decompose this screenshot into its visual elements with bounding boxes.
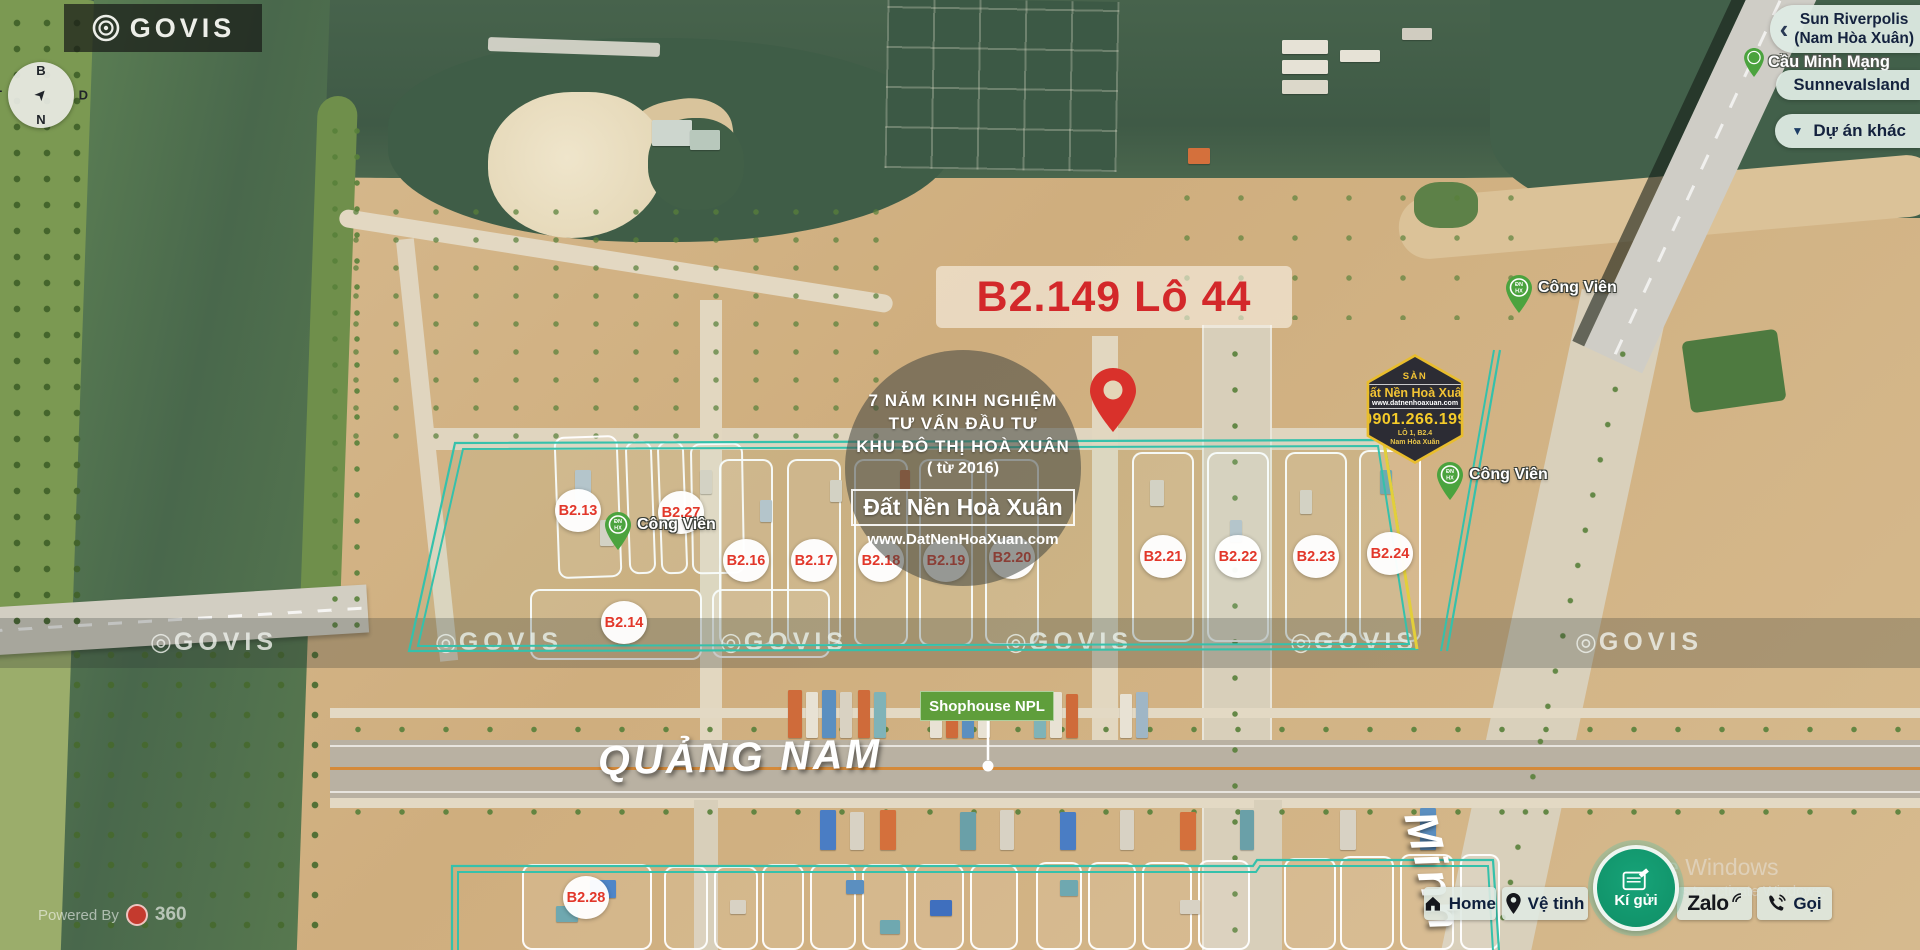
phone-icon: [1767, 894, 1786, 913]
call-button[interactable]: Gọi: [1757, 887, 1832, 920]
plot-label-B2.14[interactable]: B2.14: [601, 601, 647, 644]
rooftop: [1060, 880, 1078, 896]
rooftop: [1120, 694, 1132, 738]
powered-by-attribution: Powered By 360: [38, 904, 187, 926]
hex-address: Nam Hòa Xuân: [1390, 438, 1439, 447]
plot-label-B2.23[interactable]: B2.23: [1293, 535, 1339, 578]
rooftop: [1188, 148, 1210, 164]
green-pin-icon: ĐN HX: [605, 512, 631, 550]
plot-label-B2.21[interactable]: B2.21: [1140, 535, 1186, 578]
promo-watermark-circle: 7 NĂM KINH NGHIỆM TƯ VẤN ĐẦU TƯ KHU ĐÔ T…: [845, 350, 1081, 586]
svg-text:HX: HX: [1515, 289, 1523, 295]
lot-outline: [1198, 860, 1250, 950]
rooftop: [730, 900, 746, 914]
rooftop: [830, 480, 842, 502]
zalo-logo: Zalo: [1687, 892, 1728, 916]
compass-west-label: T: [0, 88, 2, 103]
park-label: Công Viên: [1538, 279, 1617, 297]
home-icon: [1424, 894, 1442, 913]
compass-south-label: N: [36, 112, 45, 127]
park-marker: ĐN HX Công Viên: [1437, 462, 1548, 500]
powered-by-text: Powered By: [38, 907, 119, 924]
park-label: Công Viên: [637, 516, 716, 534]
project-name-line1: Sun Riverpolis: [1800, 10, 1909, 29]
lot-outline: [970, 864, 1018, 950]
plot-label-B2.13[interactable]: B2.13: [555, 489, 601, 532]
govis-spiral-icon: [91, 13, 121, 43]
shophouse-npl-label[interactable]: Shophouse NPL: [920, 691, 1054, 721]
project-name-line2: (Nam Hòa Xuân): [1794, 29, 1914, 48]
rooftop: [1282, 60, 1328, 74]
rooftop: [1240, 810, 1254, 850]
rooftop: [1150, 480, 1164, 506]
selected-plot-pin-icon[interactable]: [1089, 368, 1137, 437]
hex-top-label: SÀN: [1403, 371, 1428, 382]
powered-by-logo-icon: [126, 904, 148, 926]
consign-button[interactable]: Kí gửi: [1593, 845, 1679, 931]
rooftop: [1402, 28, 1432, 40]
green-pin-icon: [1744, 48, 1764, 77]
compass-east-label: D: [79, 88, 88, 103]
rooftop: [1180, 812, 1196, 850]
rooftop: [960, 812, 976, 850]
map-watermark: ◎GOVIS: [1575, 627, 1703, 657]
green-pin-icon: ĐN HX: [1506, 275, 1532, 313]
promo-line: KHU ĐÔ THỊ HOÀ XUÂN: [856, 435, 1070, 458]
hex-phone-number: 0901.266.199: [1363, 411, 1467, 429]
rooftop: [1380, 470, 1392, 494]
map-watermark: ◎GOVIS: [435, 627, 563, 657]
svg-text:ĐN: ĐN: [614, 519, 622, 525]
lot-outline: [762, 864, 804, 950]
svg-text:HX: HX: [1446, 476, 1454, 482]
compass-north-label: B: [36, 63, 45, 78]
rooftop: [1066, 694, 1078, 738]
nav-back-project[interactable]: ‹ Sun Riverpolis (Nam Hòa Xuân): [1770, 5, 1920, 53]
project-name: SunnevaIsland: [1794, 76, 1910, 95]
map-pin-icon: [1506, 893, 1521, 914]
selected-plot-title: B2.149 Lô 44: [936, 266, 1292, 328]
rooftop: [846, 880, 864, 894]
other-projects-label: Dự án khác: [1813, 121, 1906, 141]
rooftop: [788, 690, 802, 738]
map-aquaculture-ponds: [885, 0, 1120, 172]
rooftop: [880, 920, 900, 934]
lot-outline: [810, 864, 856, 950]
plot-label-B2.24[interactable]: B2.24: [1367, 532, 1413, 575]
rooftop: [1282, 40, 1328, 54]
call-label: Gọi: [1793, 894, 1821, 914]
map-green-field: [1681, 329, 1786, 414]
map-trees: [324, 118, 362, 638]
rooftop: [700, 470, 712, 494]
rooftop: [820, 810, 836, 850]
lot-outline: [625, 441, 657, 575]
rooftop: [1180, 900, 1200, 914]
compass-control[interactable]: B N T D ➤: [8, 62, 74, 128]
promo-line: ( từ 2016): [927, 458, 999, 480]
nav-project-sunneva[interactable]: SunnevaIsland: [1776, 70, 1920, 100]
rooftop: [1000, 810, 1014, 850]
svg-text:ĐN: ĐN: [1515, 282, 1523, 288]
svg-text:HX: HX: [614, 526, 622, 532]
lot-outline: [664, 866, 708, 950]
powered-by-suffix: 360: [155, 904, 187, 926]
promo-website: www.DatNenHoaXuan.com: [867, 531, 1058, 548]
lot-outline: [1340, 856, 1394, 950]
rooftop: [1340, 50, 1380, 62]
map-watermark: ◎GOVIS: [1005, 627, 1133, 657]
hex-brand: Đất Nền Hoà Xuân: [1361, 386, 1469, 400]
plot-label-B2.16[interactable]: B2.16: [723, 539, 769, 582]
consign-form-icon: [1622, 867, 1650, 891]
rooftop: [690, 130, 720, 150]
govis-logo: GOVIS: [64, 4, 262, 52]
park-label: Công Viên: [1469, 466, 1548, 484]
satellite-label: Vệ tinh: [1528, 894, 1585, 914]
map-canvas[interactable]: ◎GOVIS◎GOVIS◎GOVIS◎GOVIS◎GOVIS◎GOVIS B2.…: [0, 0, 1920, 950]
rooftop: [1136, 692, 1148, 738]
zalo-button[interactable]: Zalo: [1677, 887, 1752, 920]
nav-other-projects-dropdown[interactable]: ▼ Dự án khác: [1775, 114, 1920, 148]
home-button[interactable]: Home: [1424, 887, 1496, 920]
map-trees: [336, 198, 896, 450]
map-road: [1254, 800, 1282, 950]
lot-outline: [1088, 862, 1136, 950]
svg-text:ĐN: ĐN: [1446, 469, 1454, 475]
satellite-toggle-button[interactable]: Vệ tinh: [1502, 887, 1588, 920]
plot-label-B2.28[interactable]: B2.28: [563, 876, 609, 919]
lot-outline: [862, 864, 908, 950]
map-road-quang-nam: [330, 740, 1920, 798]
plot-label-B2.17[interactable]: B2.17: [791, 539, 837, 582]
promo-line: 7 NĂM KINH NGHIỆM: [869, 389, 1058, 412]
rooftop: [850, 812, 864, 850]
rooftop: [760, 500, 772, 522]
promo-line: TƯ VẤN ĐẦU TƯ: [889, 412, 1038, 435]
green-pin-icon: ĐN HX: [1437, 462, 1463, 500]
chevron-down-icon: ▼: [1791, 124, 1803, 138]
street-label-quang-nam: QUẢNG NAM: [597, 730, 883, 784]
park-marker: ĐN HX Công Viên: [1506, 275, 1617, 313]
plot-label-B2.22[interactable]: B2.22: [1215, 535, 1261, 578]
rooftop: [880, 810, 896, 850]
chevron-left-icon: ‹: [1780, 14, 1789, 45]
lot-outline: [1036, 862, 1082, 950]
map-watermark: ◎GOVIS: [720, 627, 848, 657]
govis-logo-text: GOVIS: [130, 13, 236, 44]
promo-brand: Đất Nền Hoà Xuân: [851, 489, 1074, 526]
zalo-signal-icon: [1732, 893, 1742, 903]
compass-needle-icon: ➤: [31, 85, 50, 104]
rooftop: [1300, 490, 1312, 514]
rooftop: [1340, 810, 1356, 850]
rooftop: [930, 900, 952, 916]
hex-address: LÔ 1, B2.4: [1398, 429, 1432, 438]
map-watermark: ◎GOVIS: [1290, 627, 1418, 657]
rooftop: [1282, 80, 1328, 94]
park-marker: ĐN HX Công Viên: [605, 512, 716, 550]
rooftop: [652, 120, 692, 146]
rooftop: [1060, 812, 1076, 850]
map-trees: [60, 640, 322, 948]
consign-label: Kí gửi: [1614, 892, 1657, 909]
map-watermark: ◎GOVIS: [150, 627, 278, 657]
lot-outline: [1284, 858, 1336, 950]
rooftop: [1120, 810, 1134, 850]
hex-website: www.datnenhoaxuan.com: [1361, 400, 1469, 407]
home-label: Home: [1449, 894, 1496, 914]
